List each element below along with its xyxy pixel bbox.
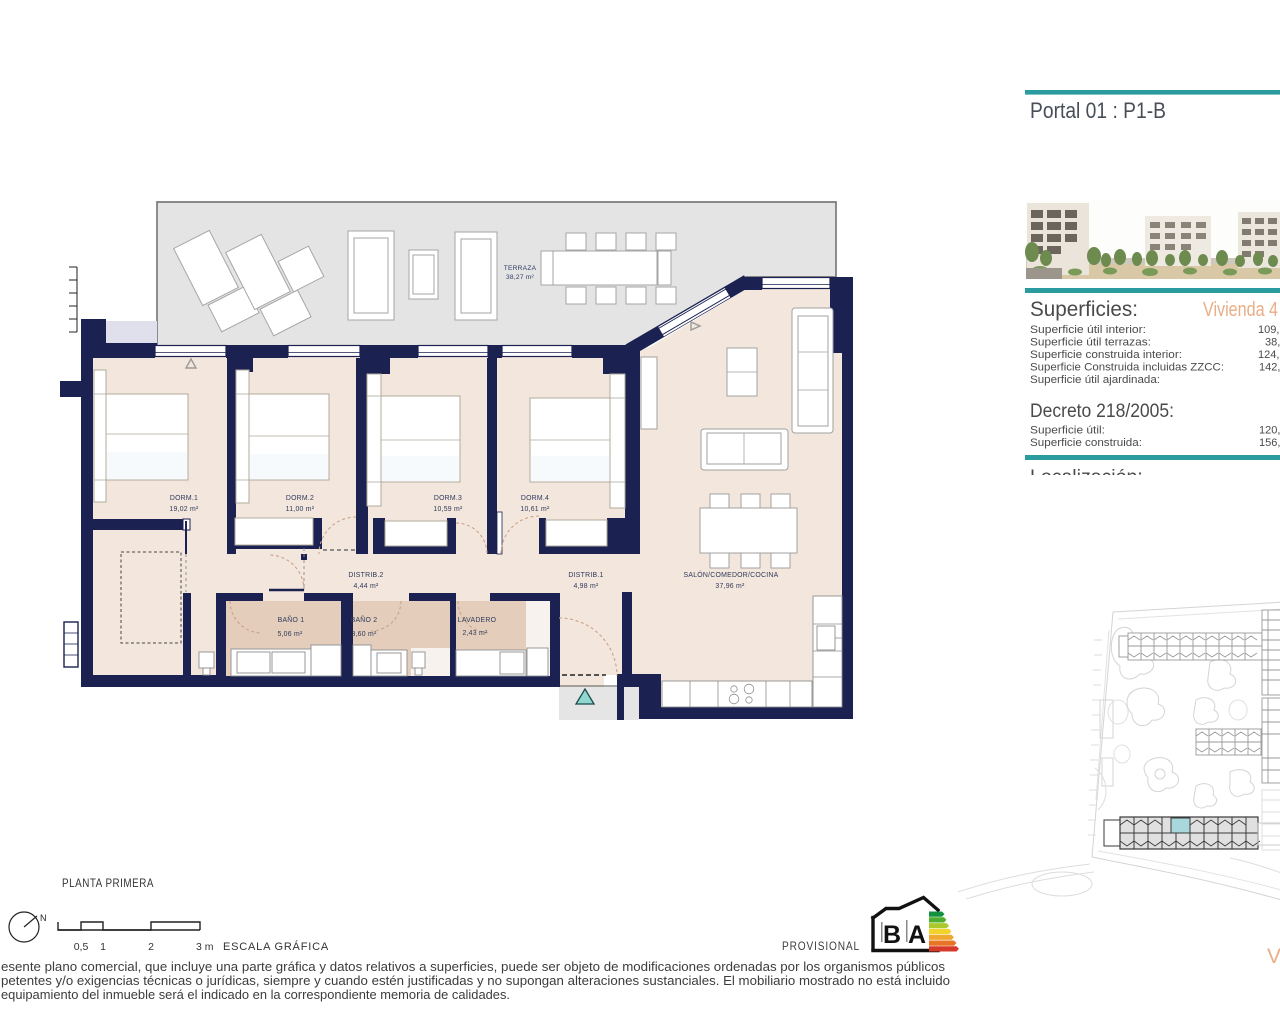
svg-text:Superficie construida interior: Superficie construida interior: [1030, 349, 1182, 361]
svg-text:DORM.4: DORM.4 [521, 495, 549, 502]
svg-text:3,60 m²: 3,60 m² [351, 631, 377, 638]
svg-text:BAÑO 1: BAÑO 1 [278, 615, 305, 624]
svg-text:DISTRIB.1: DISTRIB.1 [568, 572, 603, 579]
svg-text:156,43 m²: 156,43 m² [1259, 437, 1280, 449]
svg-text:2: 2 [148, 941, 154, 953]
svg-text:120,52 m²: 120,52 m² [1259, 425, 1280, 437]
svg-text:Superficie útil ajardinada:: Superficie útil ajardinada: [1030, 374, 1160, 386]
svg-text:38,27 m²: 38,27 m² [1265, 337, 1280, 349]
svg-text:Superficie útil:: Superficie útil: [1030, 425, 1105, 437]
svg-text:BAÑO 2: BAÑO 2 [351, 615, 378, 624]
svg-text:Portal 01 : P1-B: Portal 01 : P1-B [1030, 98, 1166, 123]
svg-text:equipamiento del inmueble será: equipamiento del inmueble será el indica… [1, 988, 510, 1002]
svg-text:esente plano comercial, que in: esente plano comercial, que incluye una … [1, 960, 945, 974]
svg-text:Superficies:: Superficies: [1030, 297, 1138, 321]
svg-text:Vivienda: Vivienda [1267, 945, 1280, 968]
svg-text:10,61 m²: 10,61 m² [520, 506, 550, 513]
svg-text:Localización:: Localización: [1030, 466, 1143, 488]
svg-text:TERRAZA: TERRAZA [504, 265, 537, 272]
svg-text:Superficie útil terrazas:: Superficie útil terrazas: [1030, 337, 1151, 349]
svg-text:DORM.1: DORM.1 [170, 495, 198, 502]
svg-text:10,59 m²: 10,59 m² [433, 506, 463, 513]
svg-text:petentes y/o exigencias técnic: petentes y/o exigencias técnicas o juríd… [1, 974, 950, 988]
svg-text:Decreto 218/2005:: Decreto 218/2005: [1030, 400, 1174, 422]
svg-text:Vivienda 4: Vivienda 4 [1203, 299, 1278, 321]
svg-text:142,98 m²: 142,98 m² [1259, 362, 1280, 374]
svg-text:DISTRIB.2: DISTRIB.2 [348, 572, 383, 579]
svg-text:SALÓN/COMEDOR/COCINA: SALÓN/COMEDOR/COCINA [684, 570, 779, 579]
svg-text:5,06 m²: 5,06 m² [277, 631, 303, 638]
svg-text:4,44 m²: 4,44 m² [353, 583, 379, 590]
svg-text:DORM.3: DORM.3 [434, 495, 462, 502]
svg-text:37,96 m²: 37,96 m² [715, 583, 745, 590]
svg-text:3 m: 3 m [196, 941, 214, 953]
svg-text:B: B [883, 921, 901, 949]
svg-text:124,60 m²: 124,60 m² [1258, 349, 1280, 361]
svg-text:0,5: 0,5 [74, 941, 89, 953]
svg-text:1: 1 [100, 941, 106, 953]
svg-text:N: N [40, 913, 47, 923]
svg-text:DORM.2: DORM.2 [286, 495, 314, 502]
svg-text:PLANTA PRIMERA: PLANTA PRIMERA [62, 878, 154, 890]
svg-text:4,98 m²: 4,98 m² [573, 583, 599, 590]
svg-text:LAVADERO: LAVADERO [458, 617, 497, 624]
svg-text:11,00 m²: 11,00 m² [286, 506, 315, 513]
svg-text:2,43 m²: 2,43 m² [462, 630, 488, 637]
svg-text:A: A [908, 921, 926, 949]
svg-text:109,79 m²: 109,79 m² [1258, 324, 1280, 336]
svg-text:Superficie útil interior:: Superficie útil interior: [1030, 324, 1146, 336]
svg-text:Superficie Construida incluida: Superficie Construida incluidas ZZCC: [1030, 362, 1224, 374]
svg-text:ESCALA GRÁFICA: ESCALA GRÁFICA [223, 940, 329, 953]
svg-text:38,27 m²: 38,27 m² [506, 274, 535, 281]
svg-text:PROVISIONAL: PROVISIONAL [782, 939, 860, 953]
svg-text:Superficie construida:: Superficie construida: [1030, 437, 1142, 449]
svg-text:19,02 m²: 19,02 m² [169, 506, 199, 513]
